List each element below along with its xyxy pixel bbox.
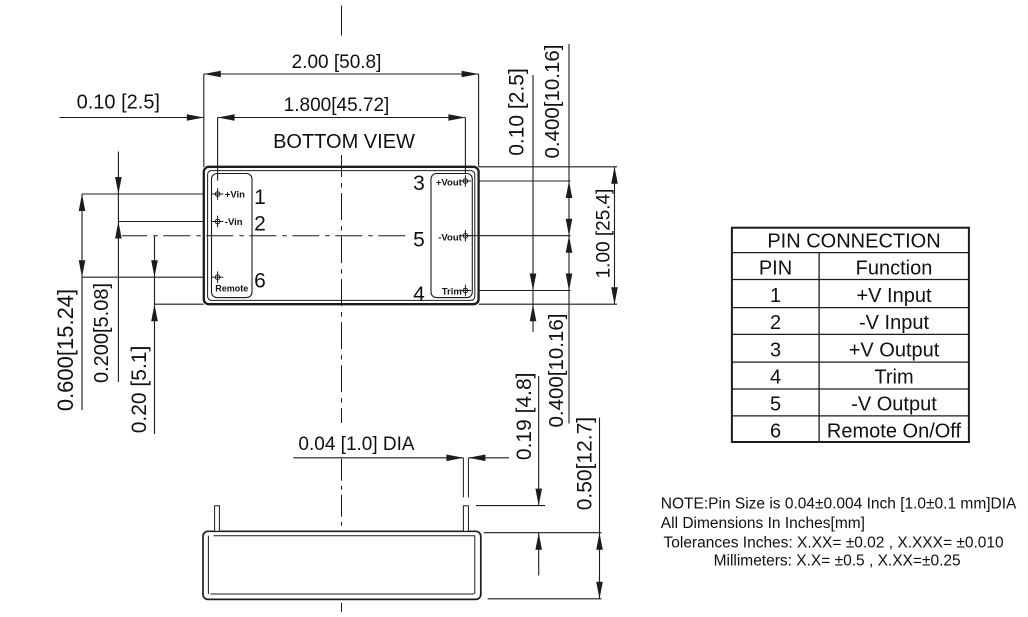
svg-text:+V Input: +V Input (856, 285, 932, 307)
svg-text:0.10 [2.5]: 0.10 [2.5] (506, 68, 529, 156)
svg-text:2.00 [50.8]: 2.00 [50.8] (292, 52, 382, 73)
svg-text:5: 5 (770, 393, 781, 415)
svg-text:Trim: Trim (874, 366, 913, 388)
svg-text:3: 3 (413, 172, 425, 195)
svg-text:0.04 [1.0] DIA: 0.04 [1.0] DIA (298, 434, 415, 455)
svg-text:-V Input: -V Input (859, 312, 929, 334)
svg-text:+Vout: +Vout (436, 178, 463, 189)
svg-text:6: 6 (770, 420, 781, 442)
svg-text:0.20 [5.1]: 0.20 [5.1] (128, 346, 151, 434)
svg-text:1: 1 (770, 285, 781, 307)
svg-text:1.00 [25.4]: 1.00 [25.4] (594, 189, 615, 279)
svg-text:Remote: Remote (215, 283, 248, 293)
svg-text:Function: Function (856, 258, 933, 280)
svg-text:2: 2 (254, 212, 266, 235)
svg-text:+V Output: +V Output (849, 339, 940, 361)
svg-text:0.50[12.7]: 0.50[12.7] (574, 417, 597, 510)
svg-text:2: 2 (770, 312, 781, 334)
svg-text:4: 4 (413, 283, 425, 306)
svg-text:Tolerances Inches: X.XX= ±0.02: Tolerances Inches: X.XX= ±0.02 , X.XXX= … (664, 534, 1005, 551)
svg-text:-Vin: -Vin (225, 217, 243, 228)
svg-text:BOTTOM VIEW: BOTTOM VIEW (273, 131, 415, 153)
svg-text:0.10 [2.5]: 0.10 [2.5] (77, 92, 160, 114)
svg-text:5: 5 (413, 228, 425, 251)
svg-text:0.600[15.24]: 0.600[15.24] (53, 289, 78, 411)
svg-text:-V Output: -V Output (851, 393, 937, 415)
svg-text:-Vout: -Vout (438, 233, 462, 244)
svg-text:6: 6 (254, 270, 266, 293)
svg-text:1: 1 (254, 186, 266, 209)
svg-text:1.800[45.72]: 1.800[45.72] (284, 95, 390, 116)
svg-text:Trim: Trim (442, 287, 462, 298)
svg-text:Remote On/Off: Remote On/Off (827, 420, 962, 442)
svg-text:PIN: PIN (759, 258, 792, 280)
svg-text:All Dimensions In Inches[mm]: All Dimensions In Inches[mm] (661, 515, 865, 532)
svg-text:4: 4 (770, 366, 781, 388)
svg-text:+Vin: +Vin (225, 190, 245, 201)
svg-text:0.19 [4.8]: 0.19 [4.8] (513, 373, 536, 461)
svg-text:0.200[5.08]: 0.200[5.08] (91, 283, 113, 383)
svg-text:3: 3 (770, 339, 781, 361)
svg-text:0.400[10.16]: 0.400[10.16] (541, 45, 564, 159)
svg-text:Millimeters: X.X= ±0.5 , X.XX=: Millimeters: X.X= ±0.5 , X.XX=±0.25 (714, 553, 961, 570)
svg-text:PIN CONNECTION: PIN CONNECTION (767, 231, 940, 253)
svg-text:0.400[10.16]: 0.400[10.16] (545, 314, 568, 428)
svg-text:NOTE:Pin Size is 0.04±0.004 In: NOTE:Pin Size is 0.04±0.004 Inch [1.0±0.… (661, 496, 1017, 513)
